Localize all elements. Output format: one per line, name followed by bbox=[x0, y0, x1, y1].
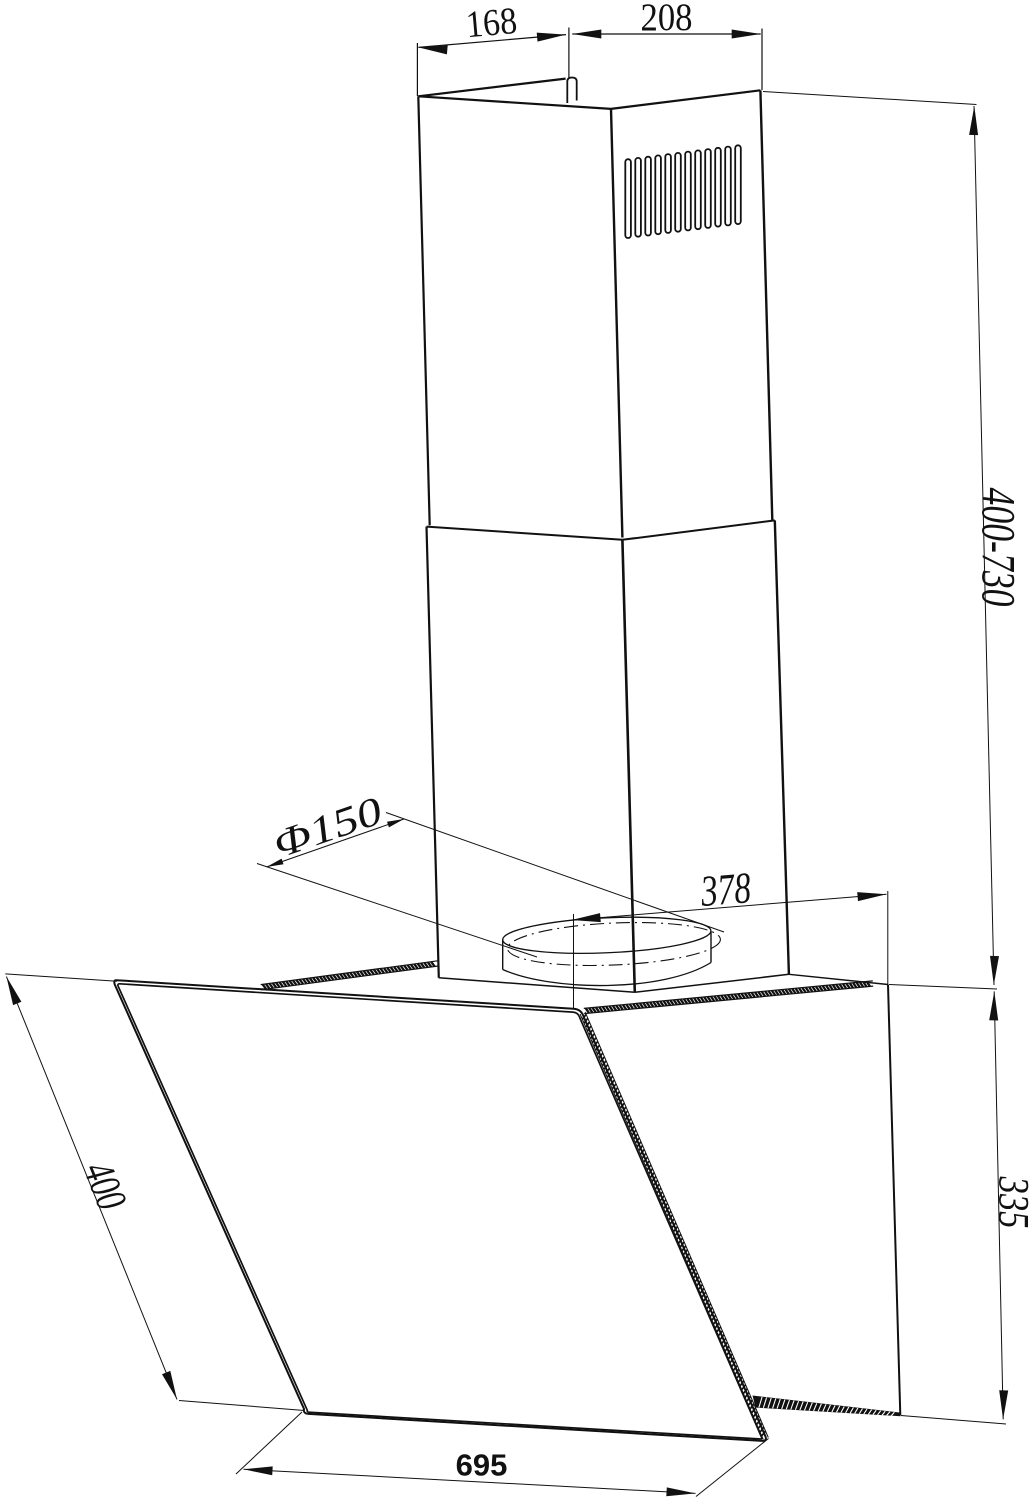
svg-text:400-730: 400-730 bbox=[972, 488, 1025, 607]
svg-text:208: 208 bbox=[641, 0, 693, 39]
svg-text:695: 695 bbox=[456, 1448, 508, 1483]
svg-text:378: 378 bbox=[698, 863, 753, 916]
svg-text:335: 335 bbox=[990, 1176, 1032, 1229]
svg-text:168: 168 bbox=[464, 0, 518, 46]
